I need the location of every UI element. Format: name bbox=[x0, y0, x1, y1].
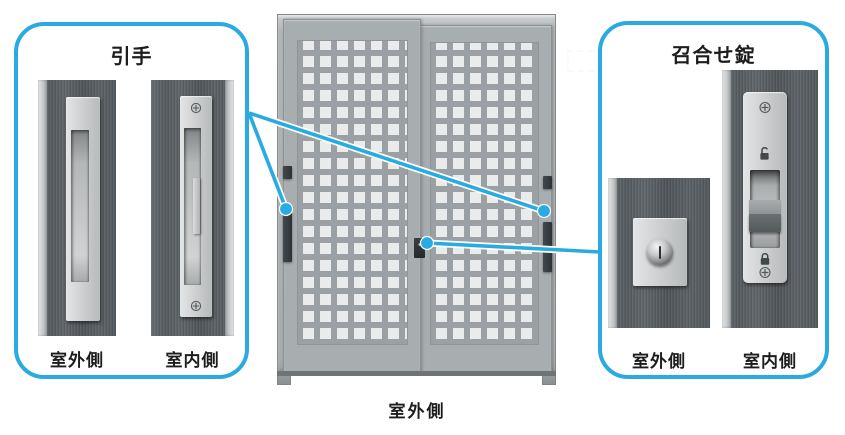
screw-icon bbox=[190, 102, 202, 114]
slider-front-face bbox=[749, 214, 781, 232]
lock-lever bbox=[193, 178, 200, 234]
door-edge-strip bbox=[225, 80, 234, 336]
meeting-stile-lock bbox=[414, 238, 425, 258]
door-edge-strip bbox=[38, 80, 47, 336]
lock-indoor-photo bbox=[722, 70, 818, 328]
sliding-door-illustration bbox=[277, 14, 556, 373]
outdoor-side-label: 室外側 bbox=[608, 347, 710, 372]
door-edge-strip bbox=[722, 70, 731, 328]
pull-handle-recess bbox=[71, 130, 89, 282]
padlock-closed-icon bbox=[759, 252, 772, 266]
door-panel-left bbox=[283, 19, 421, 372]
door-edge-strip bbox=[608, 178, 617, 328]
keyhole-icon bbox=[418, 243, 421, 246]
padlock-open-icon bbox=[758, 146, 772, 161]
key-cylinder-icon bbox=[647, 239, 673, 265]
slider-top-face bbox=[749, 200, 781, 214]
thumbturn-plate bbox=[743, 92, 787, 283]
screw-icon bbox=[759, 266, 772, 279]
pull-handle-outdoor-photo bbox=[38, 80, 116, 336]
screw-icon bbox=[190, 300, 202, 312]
pull-handle-plate bbox=[180, 96, 212, 317]
handle-keeper bbox=[543, 176, 552, 189]
door-panel-right bbox=[417, 25, 552, 372]
screw-icon bbox=[759, 101, 772, 114]
outdoor-side-label: 室外側 bbox=[38, 346, 116, 371]
door-pull-handle bbox=[283, 212, 292, 262]
door-side-label: 室外側 bbox=[347, 397, 487, 422]
indoor-side-label: 室内側 bbox=[151, 346, 234, 371]
meeting-lock-title: 召合せ錠 bbox=[602, 39, 825, 68]
pull-handle-callout: 引手 bbox=[14, 22, 249, 379]
lattice-grille bbox=[297, 40, 408, 345]
lattice-grille bbox=[430, 42, 539, 345]
product-diagram: 引手 bbox=[0, 0, 845, 435]
keyhole-icon bbox=[659, 246, 661, 259]
lock-slider bbox=[749, 200, 781, 232]
cylinder-plate bbox=[633, 218, 687, 286]
thumbturn-track bbox=[750, 170, 780, 248]
door-pull-handle bbox=[543, 222, 552, 272]
indoor-side-label: 室内側 bbox=[722, 347, 818, 372]
pull-handle-recess bbox=[184, 128, 201, 285]
handle-keeper bbox=[283, 166, 292, 179]
door-sill bbox=[277, 371, 556, 376]
meeting-lock-callout: 召合せ錠 bbox=[598, 21, 829, 379]
pull-handle-title: 引手 bbox=[18, 40, 245, 69]
pull-handle-plate bbox=[66, 97, 100, 321]
lock-outdoor-photo bbox=[608, 178, 710, 328]
pull-handle-indoor-photo bbox=[151, 80, 234, 336]
